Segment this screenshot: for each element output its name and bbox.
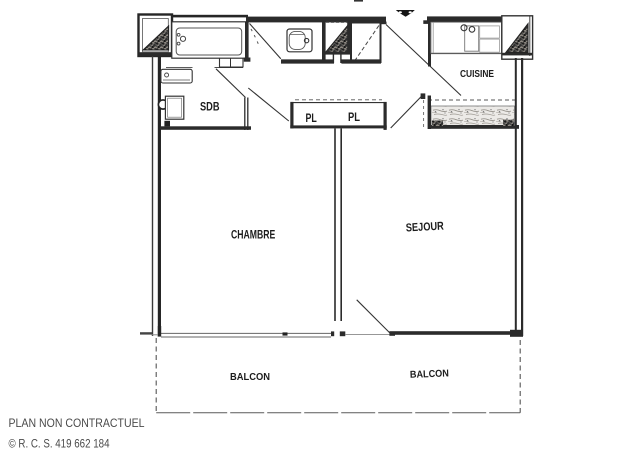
svg-text:BALCON: BALCON: [410, 368, 449, 380]
svg-text:CUISINE: CUISINE: [460, 68, 494, 80]
svg-text:PL: PL: [306, 113, 317, 125]
svg-text:© R. C. S. 419 662 184: © R. C. S. 419 662 184: [9, 437, 110, 451]
svg-text:SDB: SDB: [200, 100, 220, 114]
svg-text:SEJOUR: SEJOUR: [406, 220, 445, 234]
svg-text:CHAMBRE: CHAMBRE: [231, 229, 276, 241]
svg-text:BALCON: BALCON: [230, 372, 270, 383]
svg-text:PLAN NON CONTRACTUEL: PLAN NON CONTRACTUEL: [9, 416, 145, 430]
svg-text:PL: PL: [348, 112, 360, 124]
